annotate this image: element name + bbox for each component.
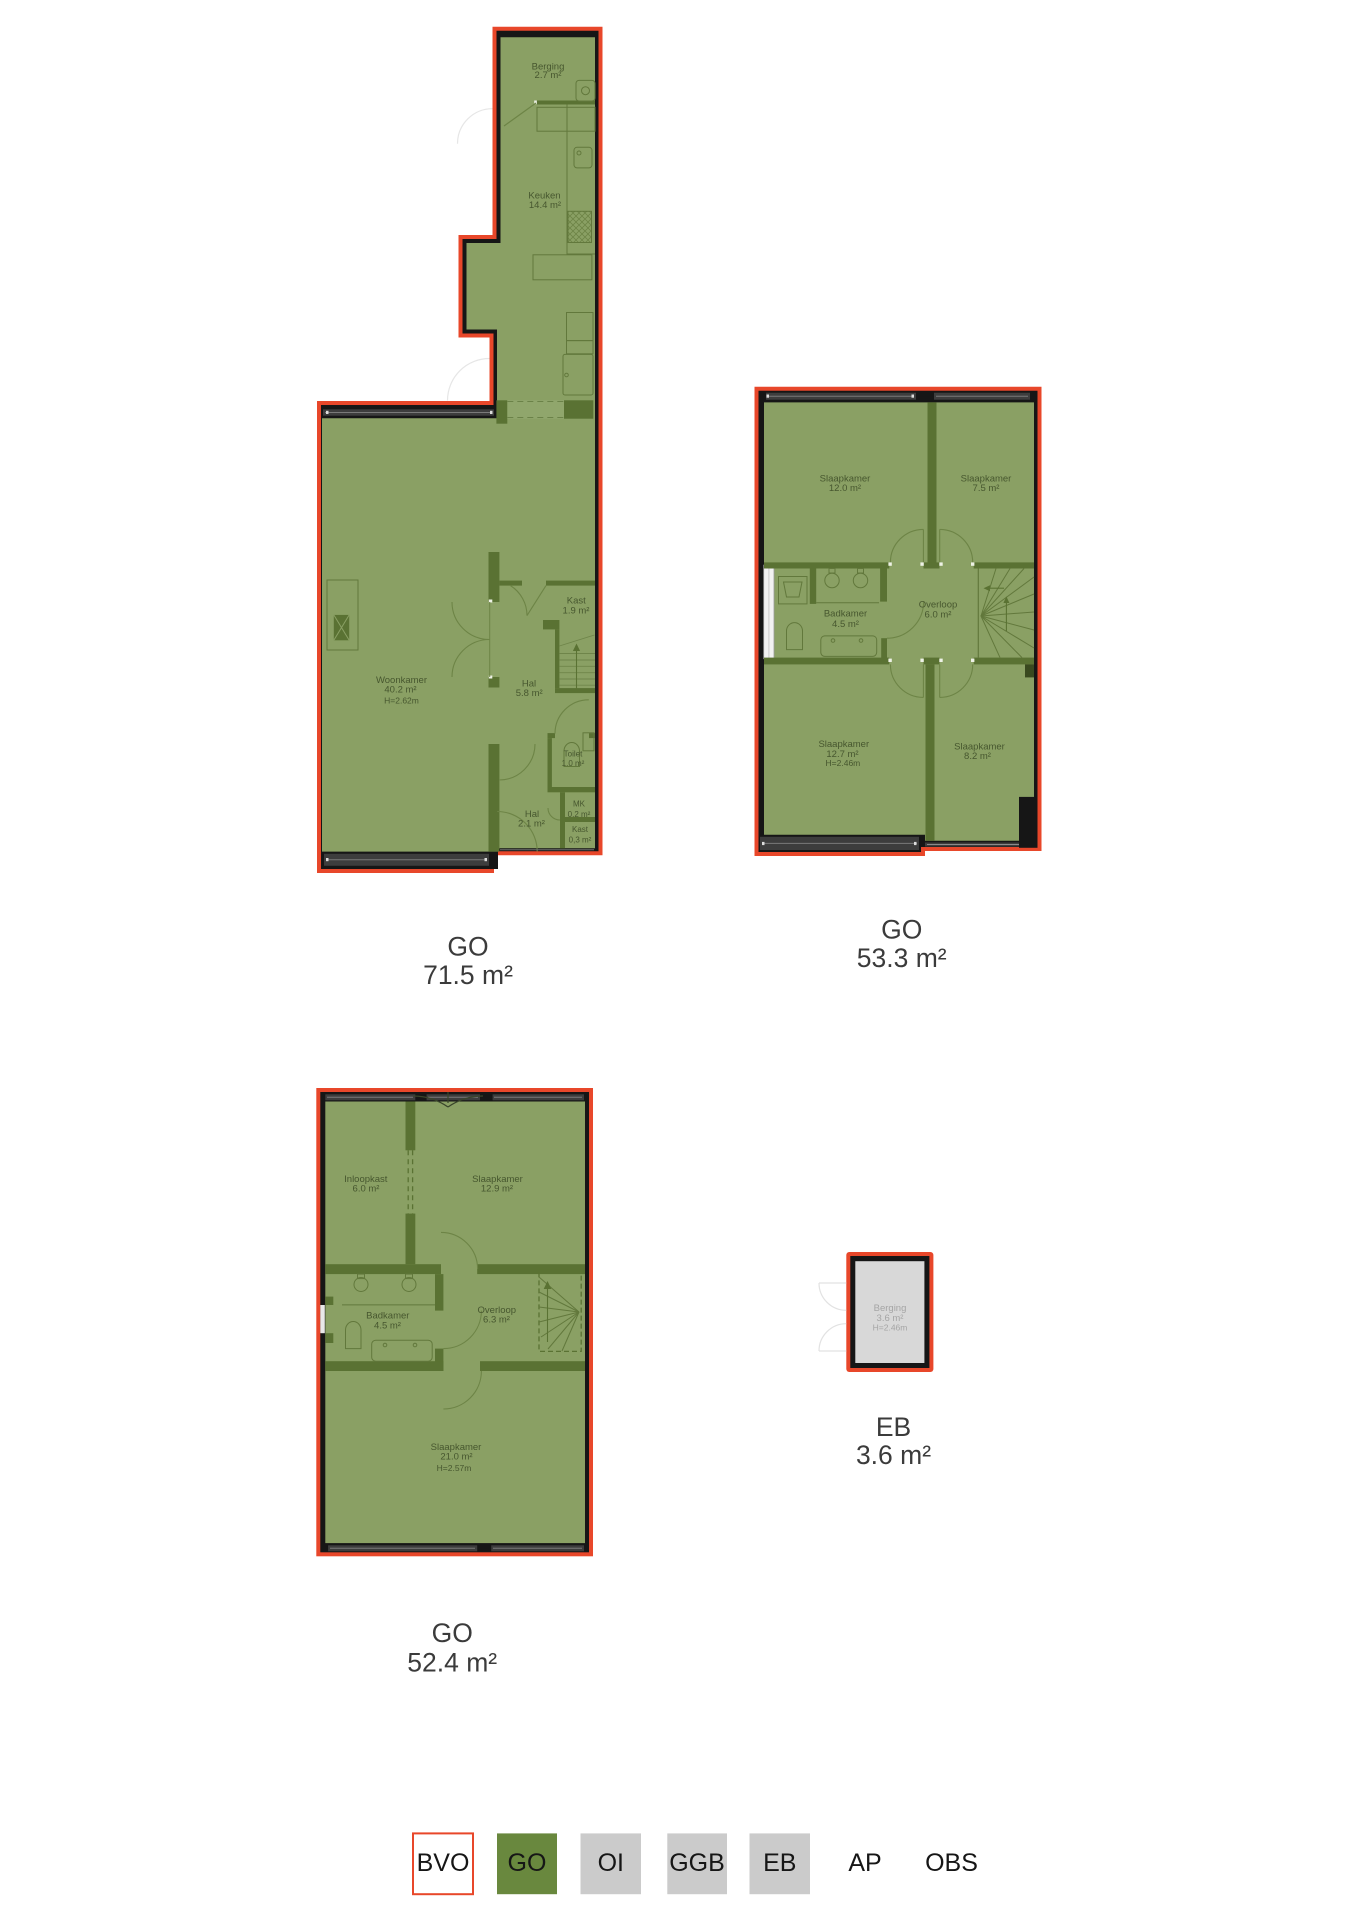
svg-text:EB: EB [876, 1412, 911, 1442]
svg-text:GO: GO [447, 932, 488, 962]
svg-text:H=2.62m: H=2.62m [384, 696, 419, 706]
svg-text:21.0 m²: 21.0 m² [440, 1452, 472, 1463]
svg-text:7.5 m²: 7.5 m² [973, 483, 1000, 494]
svg-text:3.6 m²: 3.6 m² [856, 1440, 931, 1470]
svg-text:6.0 m²: 6.0 m² [925, 610, 952, 621]
svg-text:1.9 m²: 1.9 m² [563, 605, 590, 616]
svg-text:H=2.46m: H=2.46m [826, 758, 861, 768]
svg-text:2.7 m²: 2.7 m² [535, 70, 562, 81]
svg-text:Kast: Kast [572, 825, 589, 834]
svg-text:Toilet: Toilet [564, 750, 583, 759]
svg-text:0.2 m²: 0.2 m² [568, 810, 591, 819]
svg-text:71.5 m²: 71.5 m² [423, 960, 513, 990]
svg-text:4.5 m²: 4.5 m² [832, 619, 859, 630]
svg-text:5.8 m²: 5.8 m² [516, 688, 543, 699]
svg-text:52.4 m²: 52.4 m² [407, 1647, 497, 1677]
svg-text:1.0 m²: 1.0 m² [562, 759, 585, 768]
svg-text:MK: MK [573, 800, 586, 809]
svg-text:4.5 m²: 4.5 m² [374, 1320, 401, 1331]
svg-text:8.2 m²: 8.2 m² [964, 751, 991, 762]
svg-text:12.9 m²: 12.9 m² [481, 1184, 513, 1195]
svg-text:6.0 m²: 6.0 m² [353, 1184, 380, 1195]
svg-text:EB: EB [763, 1849, 796, 1877]
svg-text:12.0 m²: 12.0 m² [829, 483, 861, 494]
svg-text:0,3 m²: 0,3 m² [569, 836, 592, 845]
svg-text:14.4 m²: 14.4 m² [529, 200, 561, 211]
svg-text:Badkamer: Badkamer [824, 609, 867, 620]
svg-text:BVO: BVO [417, 1849, 470, 1877]
svg-text:GGB: GGB [669, 1849, 725, 1877]
svg-text:53.3 m²: 53.3 m² [857, 943, 947, 973]
svg-text:6.3 m²: 6.3 m² [483, 1315, 510, 1326]
svg-text:H=2.46m: H=2.46m [873, 1323, 908, 1333]
svg-text:GO: GO [432, 1618, 473, 1648]
svg-text:AP: AP [848, 1849, 881, 1877]
svg-text:H=2.57m: H=2.57m [437, 1463, 472, 1473]
svg-text:GO: GO [508, 1849, 547, 1877]
svg-text:2.1 m²: 2.1 m² [518, 819, 545, 830]
svg-text:OI: OI [598, 1849, 624, 1877]
svg-text:OBS: OBS [925, 1849, 978, 1877]
svg-text:40.2 m²: 40.2 m² [384, 684, 416, 695]
svg-text:GO: GO [881, 914, 922, 944]
